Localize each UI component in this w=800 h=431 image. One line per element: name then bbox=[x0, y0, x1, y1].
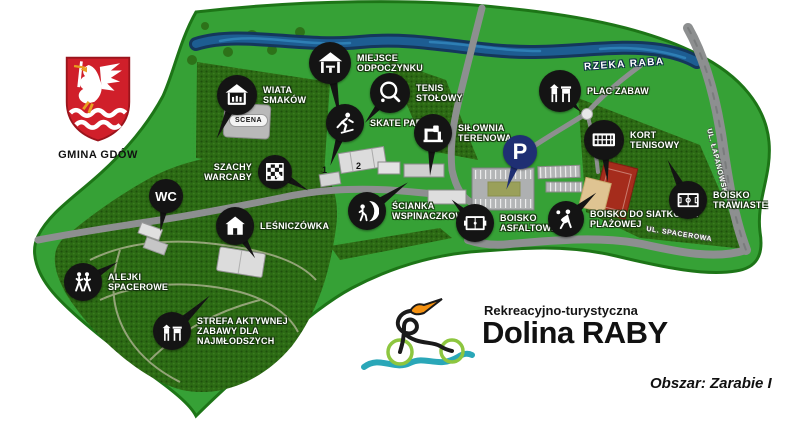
poi-plac-zabaw[interactable]: PLAC ZABAW bbox=[539, 70, 581, 112]
hut-icon bbox=[217, 75, 257, 115]
crest-label: GMINA GDÓW bbox=[52, 149, 144, 161]
playground-icon bbox=[153, 312, 191, 350]
poi-boisko-siatkowka-plazowa[interactable]: BOISKO DO SIATKÓWKI PLAŻOWEJ bbox=[548, 201, 584, 237]
house-icon bbox=[216, 207, 254, 245]
area-label: Obszar: Zarabie I bbox=[650, 375, 772, 392]
gmina-gdow-crest: GMINA GDÓW bbox=[52, 54, 144, 161]
chess-icon: ♞ bbox=[258, 155, 292, 189]
poi-miejsce-odpoczynku[interactable]: MIEJSCE ODPOCZYNKU bbox=[309, 42, 351, 84]
skater-icon bbox=[326, 104, 364, 142]
poi-label: MIEJSCE ODPOCZYNKU bbox=[357, 53, 423, 73]
poi-label: BOISKO TRAWIASTE bbox=[713, 190, 768, 210]
playground-icon bbox=[539, 70, 581, 112]
poi-strefa-najmlodszych[interactable]: STREFA AKTYWNEJ ZABAWY DLA NAJMŁODSZYCH bbox=[153, 312, 191, 350]
poi-label: LEŚNICZÓWKA bbox=[260, 221, 329, 231]
park-map-canvas: RZEKA RABA UL. ŁAPANOWSKA UL. SPACEROWA … bbox=[0, 0, 800, 431]
gym-icon bbox=[414, 114, 452, 152]
wc-letters-icon: WC bbox=[149, 179, 183, 213]
poi-silownia-terenowa[interactable]: SIŁOWNIA TERENOWA bbox=[414, 114, 452, 152]
poi-parking[interactable]: P bbox=[503, 135, 537, 169]
poi-label: TENIS STOŁOWY bbox=[416, 83, 463, 103]
svg-text:♞: ♞ bbox=[274, 170, 284, 183]
poi-label: WIATA SMAKÓW bbox=[263, 85, 306, 105]
poi-wiata-smakow[interactable]: WIATA SMAKÓW bbox=[217, 75, 257, 115]
flag-icon bbox=[410, 299, 442, 314]
climber-icon bbox=[348, 192, 386, 230]
bike-logo-icon bbox=[358, 283, 478, 383]
parking-letter-icon: P bbox=[503, 135, 537, 169]
poi-szachy-warcaby[interactable]: ♞SZACHY WARCABY bbox=[258, 155, 292, 189]
soccer-field-icon bbox=[669, 181, 707, 219]
poi-label: KORT TENISOWY bbox=[630, 130, 680, 150]
poi-label: SZACHY WARCABY bbox=[204, 162, 252, 182]
poi-wc[interactable]: WC bbox=[149, 179, 183, 213]
shelter-icon bbox=[309, 42, 351, 84]
poi-lesniczowka[interactable]: LEŚNICZÓWKA bbox=[216, 207, 254, 245]
poi-alejki-spacerowe[interactable]: ALEJKI SPACEROWE bbox=[64, 263, 102, 301]
poi-scianka-wspinaczkowa[interactable]: ŚCIANKA WSPINACZKOWA bbox=[348, 192, 386, 230]
poi-skate-park[interactable]: SKATE PARK bbox=[326, 104, 364, 142]
volleyball-icon bbox=[548, 201, 584, 237]
coat-of-arms-icon bbox=[59, 54, 137, 146]
tennis-net-icon bbox=[584, 120, 624, 160]
poi-tenis-stolowy[interactable]: TENIS STOŁOWY bbox=[370, 73, 410, 113]
poi-boisko-trawiaste[interactable]: BOISKO TRAWIASTE bbox=[669, 181, 707, 219]
walkers-icon bbox=[64, 263, 102, 301]
poi-label: PLAC ZABAW bbox=[587, 86, 649, 96]
poi-kort-tenisowy[interactable]: KORT TENISOWY bbox=[584, 120, 624, 160]
poi-boisko-asfaltowe[interactable]: BOISKO ASFALTOWE bbox=[456, 204, 494, 242]
court-icon bbox=[456, 204, 494, 242]
poi-label: ALEJKI SPACEROWE bbox=[108, 272, 168, 292]
logo-title: Dolina RABY bbox=[482, 315, 668, 351]
dolina-raby-logo: Rekreacyjno-turystyczna Dolina RABY bbox=[358, 281, 688, 381]
poi-label: STREFA AKTYWNEJ ZABAWY DLA NAJMŁODSZYCH bbox=[197, 316, 288, 346]
paddle-icon bbox=[370, 73, 410, 113]
